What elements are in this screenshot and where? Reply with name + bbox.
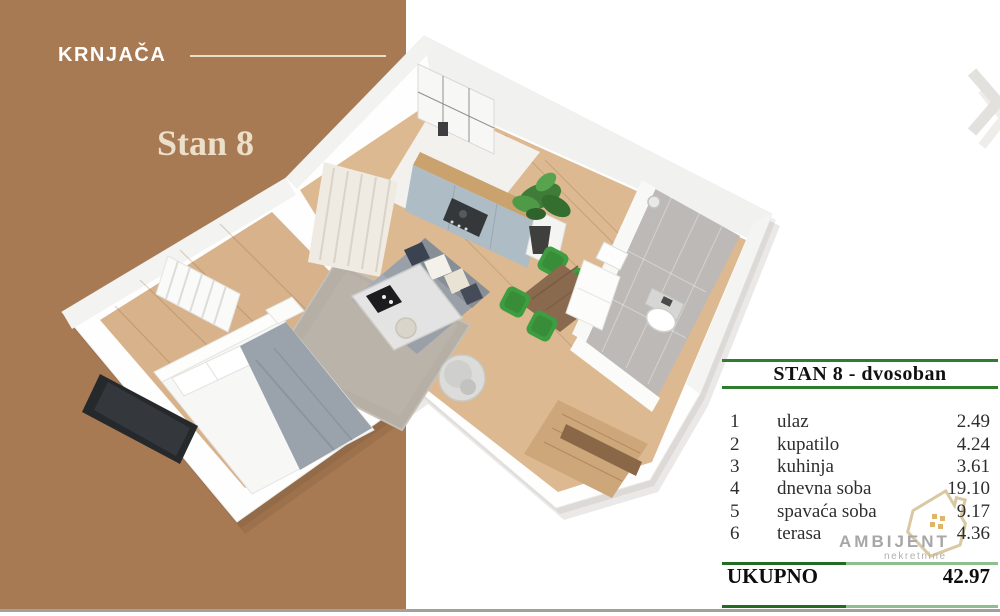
terrace-threshold (560, 424, 642, 476)
room-name: ulaz (777, 411, 918, 433)
bathroom-sink (596, 242, 628, 270)
bathroom-floor (580, 186, 740, 396)
room-area: 4.24 (918, 434, 998, 456)
bottom-border (0, 609, 1000, 612)
row-number: 4 (722, 478, 777, 500)
room-area: 19.10 (918, 478, 998, 500)
unit-title: Stan 8 (118, 122, 293, 164)
sofa-pillow (404, 242, 430, 266)
table-row: 4 dnevna soba 19.10 (722, 478, 998, 500)
potted-plant (510, 169, 574, 254)
table-title: STAN 8 - dvosoban (722, 362, 998, 386)
total-value: 42.97 (943, 564, 998, 589)
row-number: 2 (722, 434, 777, 456)
table-row: 2 kupatilo 4.24 (722, 433, 998, 455)
room-name: kuhinja (777, 456, 918, 478)
room-name: kupatilo (777, 434, 918, 456)
sofa-pillow (424, 254, 452, 280)
dining-chair (497, 284, 532, 319)
left-brand-panel (0, 0, 406, 609)
shower (648, 196, 660, 234)
bathroom-tile-lines (602, 196, 722, 384)
next-arrow-icon[interactable] (968, 60, 1000, 152)
sofa-pillow (444, 268, 470, 294)
room-area: 2.49 (918, 411, 998, 433)
toilet (643, 288, 684, 336)
table-rows: 1 ulaz 2.49 2 kupatilo 4.24 3 kuhinja 3.… (722, 411, 998, 545)
table-row: 3 kuhinja 3.61 (722, 456, 998, 478)
table-total-row: UKUPNO 42.97 (722, 565, 998, 588)
table-rule-total-bottom (722, 605, 998, 608)
room-name: spavaća soba (777, 501, 918, 523)
room-name: dnevna soba (777, 478, 918, 500)
entry-wardrobe (566, 260, 620, 330)
row-number: 3 (722, 456, 777, 478)
table-row: 1 ulaz 2.49 (722, 411, 998, 433)
kitchen-counter (405, 152, 566, 268)
location-title: KRNJAČA (58, 44, 166, 67)
row-number: 1 (722, 411, 777, 433)
row-number: 5 (722, 501, 777, 523)
dining-chair (535, 244, 570, 279)
room-area: 3.61 (918, 456, 998, 478)
total-label: UKUPNO (722, 564, 943, 589)
table-row: 6 terasa 4.36 (722, 523, 998, 545)
table-row: 5 spavaća soba 9.17 (722, 501, 998, 523)
bathroom-left-wall (572, 180, 656, 342)
room-name: terasa (777, 523, 918, 545)
armchair (439, 355, 485, 401)
header-rule (190, 55, 386, 57)
stove (443, 198, 488, 237)
sofa-pillow (460, 283, 483, 305)
row-number: 6 (722, 523, 777, 545)
table-rule-under-title (722, 386, 998, 389)
page: KRNJAČA Stan 8 AMBIJENT nekretnine STAN … (0, 0, 1000, 616)
kitchen-upper-cabinets (418, 64, 494, 154)
hall-floor-planks (432, 135, 700, 365)
bathroom-bottom-wall (570, 336, 660, 412)
terrace-planks (544, 414, 640, 481)
room-area: 4.36 (918, 523, 998, 545)
room-area: 9.17 (918, 501, 998, 523)
dining-table (516, 264, 606, 332)
dining-chair (562, 265, 597, 300)
terrace-floor (524, 400, 648, 498)
area-table: STAN 8 - dvosoban 1 ulaz 2.49 2 kupatilo… (722, 359, 998, 608)
dining-chair (524, 308, 559, 343)
dining-set (497, 244, 606, 343)
